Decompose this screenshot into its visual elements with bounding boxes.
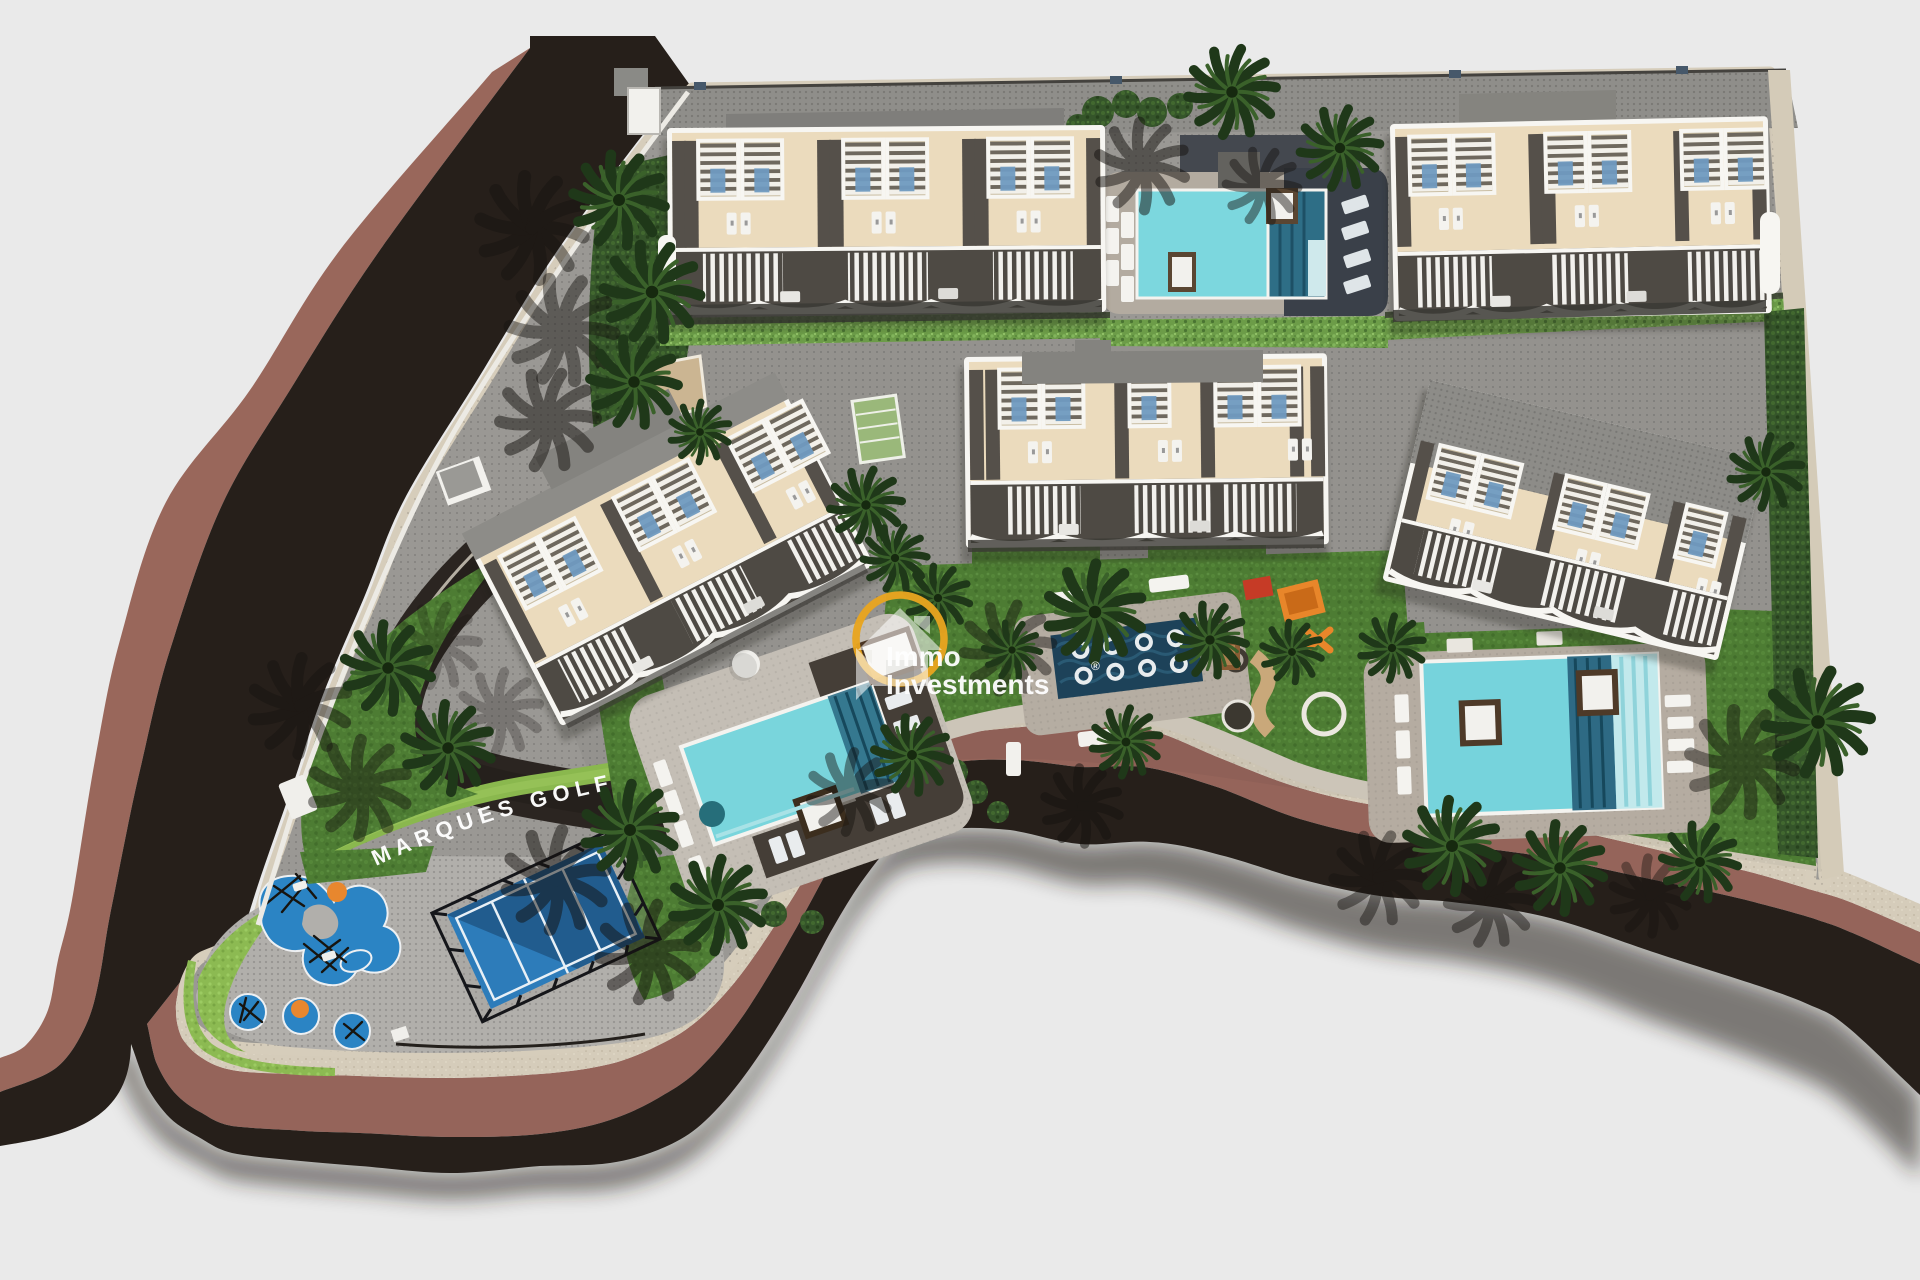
svg-text:®: ® (1091, 659, 1100, 673)
svg-text:Investments: Investments (886, 669, 1049, 700)
svg-text:Immo: Immo (886, 641, 961, 672)
